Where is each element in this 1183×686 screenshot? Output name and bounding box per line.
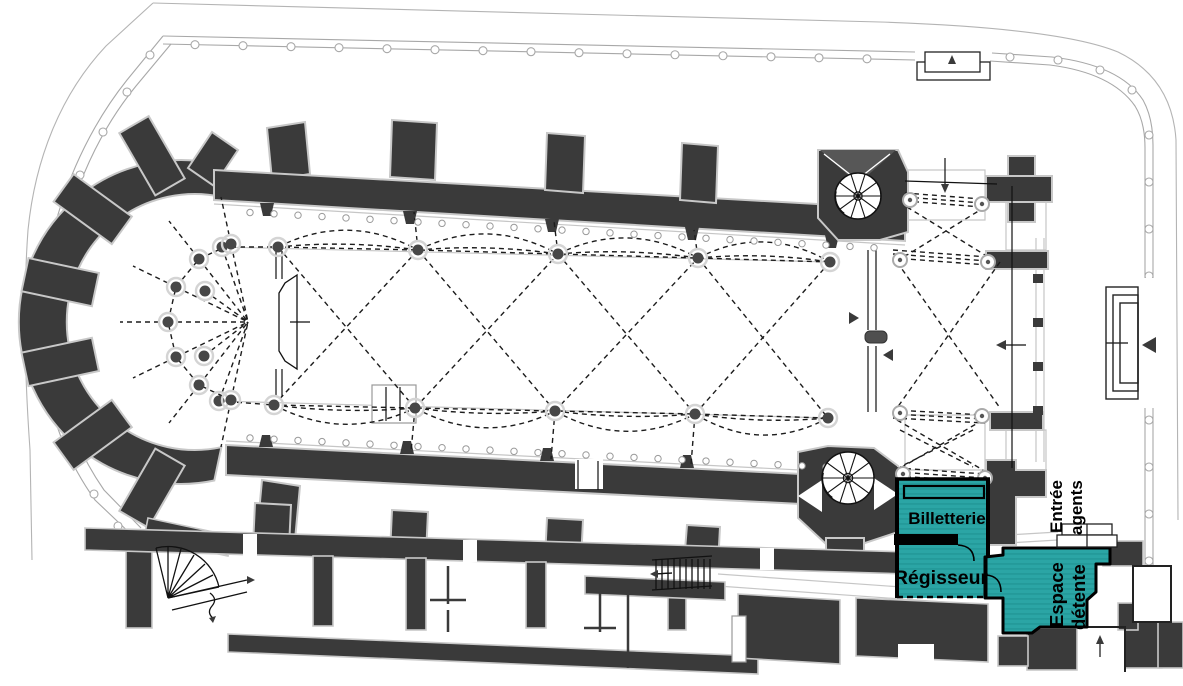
fan-stair — [156, 546, 247, 619]
billetterie-regisseur-wall — [894, 534, 958, 545]
north-gate-steps — [917, 52, 990, 80]
altar — [865, 331, 887, 343]
floor-plan-page: Billetterie Régisseur Espace détente Ent… — [0, 0, 1183, 686]
south-wall — [226, 445, 880, 508]
label-entree-line2: agents — [1067, 480, 1086, 535]
label-espace-line1: Espace — [1046, 562, 1067, 627]
label-regisseur: Régisseur — [894, 567, 989, 589]
label-espace-line2: détente — [1068, 564, 1089, 630]
southeast-pier — [986, 460, 1046, 545]
label-entree-line1: Entrée — [1047, 480, 1066, 533]
label-billetterie: Billetterie — [908, 509, 985, 528]
floor-plan-svg: Billetterie Régisseur Espace détente Ent… — [0, 0, 1183, 686]
agents-entrance-steps — [1057, 524, 1117, 547]
